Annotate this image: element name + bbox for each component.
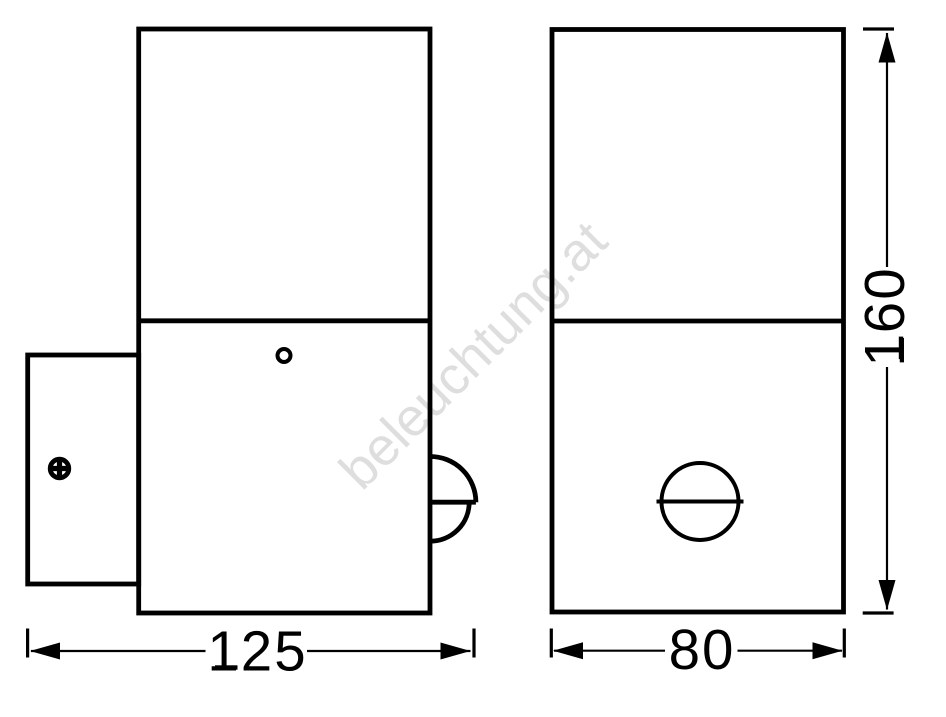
svg-text:160: 160 [853,266,916,366]
svg-text:80: 80 [669,618,736,681]
svg-text:125: 125 [207,620,307,683]
